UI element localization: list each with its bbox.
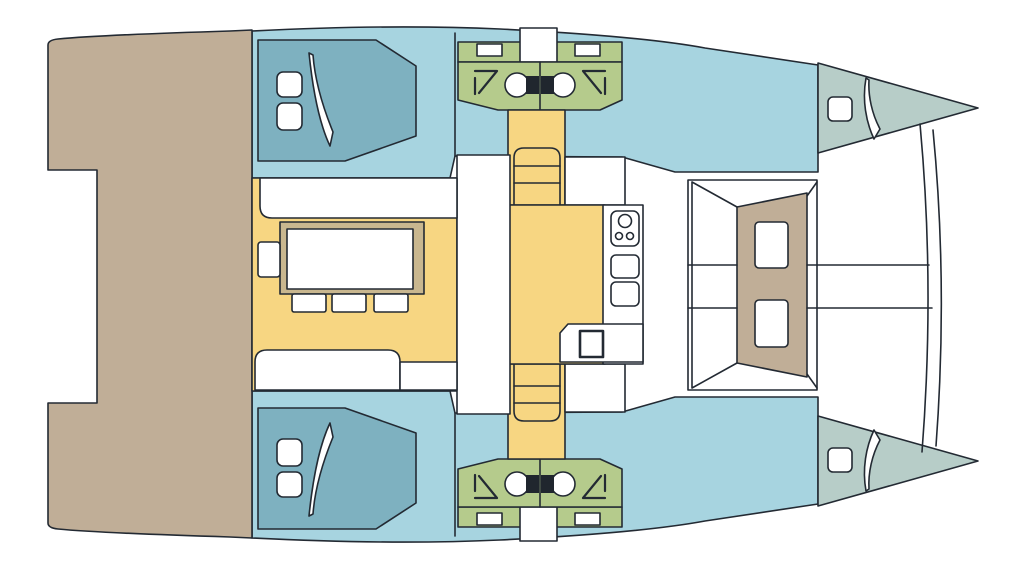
saloon-end-seat	[258, 242, 280, 277]
deck-plan-stage	[0, 0, 1024, 569]
starboard-stairs-corridor	[508, 364, 565, 459]
saloon-stool-2	[332, 294, 366, 312]
port-bow-hatch	[828, 97, 852, 121]
starboard-toilet-left-icon	[505, 472, 529, 496]
saloon-sofa-port	[260, 178, 457, 218]
aft-deck	[48, 30, 252, 538]
port-aft-cabin-bed	[258, 40, 416, 161]
port-head-sink-right	[575, 44, 600, 56]
port-stairs-corridor	[508, 110, 565, 205]
cockpit-cushion-2	[755, 300, 788, 347]
port-toilet-left-icon	[505, 73, 529, 97]
port-counter-box	[565, 157, 625, 205]
port-head-doorway	[520, 28, 557, 62]
cockpit-cushion-1	[755, 222, 788, 268]
starboard-aft-cabin-bed	[258, 408, 416, 529]
port-head-sink-left	[477, 44, 502, 56]
starboard-bow-hatch	[828, 448, 852, 472]
port-toilet-right-icon	[551, 73, 575, 97]
catamaran-deck-plan	[0, 0, 1024, 569]
bow-bridle-right	[933, 130, 941, 446]
starboard-toilet-right-icon	[551, 472, 575, 496]
starboard-aft-cabin-hatch-1	[277, 472, 302, 497]
starboard-aft-cabin-hatch-2	[277, 439, 302, 466]
bow-bridle-left	[920, 124, 928, 452]
saloon-sofa-starboard-ext	[400, 362, 457, 390]
galley-appliance	[580, 331, 603, 357]
galley-sink-1	[611, 255, 639, 278]
galley-stove	[611, 211, 639, 246]
starboard-toilet-right-tank	[541, 475, 554, 493]
starboard-head-doorway	[520, 507, 557, 541]
cockpit-bench	[737, 193, 807, 377]
port-aft-cabin-hatch-2	[277, 103, 302, 130]
galley-sink-2	[611, 282, 639, 306]
saloon-sofa-starboard	[255, 350, 400, 390]
aft-deck-platform	[48, 30, 252, 538]
starboard-counter-box	[565, 364, 625, 412]
starboard-toilet-left-tank	[526, 475, 539, 493]
companionway-walkway	[457, 155, 510, 414]
foredeck-beam-lines	[817, 265, 932, 308]
saloon-stool-3	[374, 294, 408, 312]
saloon-stool-1	[292, 294, 326, 312]
starboard-head-sink-left	[477, 513, 502, 525]
saloon-table-top	[287, 229, 413, 289]
port-aft-cabin-hatch-1	[277, 72, 302, 97]
starboard-head-sink-right	[575, 513, 600, 525]
port-toilet-right-tank	[541, 76, 554, 94]
port-toilet-left-tank	[526, 76, 539, 94]
